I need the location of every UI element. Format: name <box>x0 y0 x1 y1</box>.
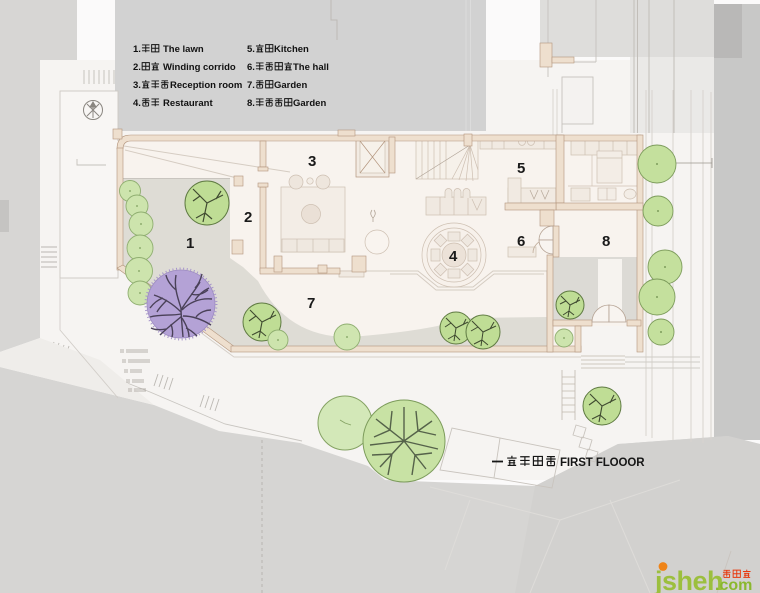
svg-text:FIRST FLOOOR: FIRST FLOOOR <box>560 457 645 469</box>
svg-text:7.: 7. <box>247 80 255 91</box>
svg-text:6.: 6. <box>247 62 255 73</box>
svg-text:8.: 8. <box>247 98 255 109</box>
svg-text:Garden: Garden <box>293 98 326 109</box>
svg-text:Restaurant: Restaurant <box>163 98 213 109</box>
svg-text:Winding corrido: Winding corrido <box>163 62 236 73</box>
svg-text:1.: 1. <box>133 44 141 55</box>
svg-text:4.: 4. <box>133 98 141 109</box>
svg-text:8: 8 <box>602 233 610 250</box>
svg-text:.com: .com <box>715 577 752 593</box>
svg-text:2: 2 <box>244 209 252 226</box>
svg-text:The lawn: The lawn <box>163 44 204 55</box>
svg-text:6: 6 <box>517 233 525 250</box>
svg-text:Reception room: Reception room <box>170 80 242 91</box>
svg-text:5: 5 <box>517 160 525 177</box>
svg-text:Kitchen: Kitchen <box>274 44 309 55</box>
svg-text:2.: 2. <box>133 62 141 73</box>
svg-text:4: 4 <box>449 248 458 265</box>
svg-text:The hall: The hall <box>293 62 329 73</box>
svg-text:7: 7 <box>307 295 315 312</box>
svg-text:1: 1 <box>186 235 194 252</box>
svg-text:Garden: Garden <box>274 80 307 91</box>
svg-text:3: 3 <box>308 153 316 170</box>
svg-text:5.: 5. <box>247 44 255 55</box>
svg-text:3.: 3. <box>133 80 141 91</box>
